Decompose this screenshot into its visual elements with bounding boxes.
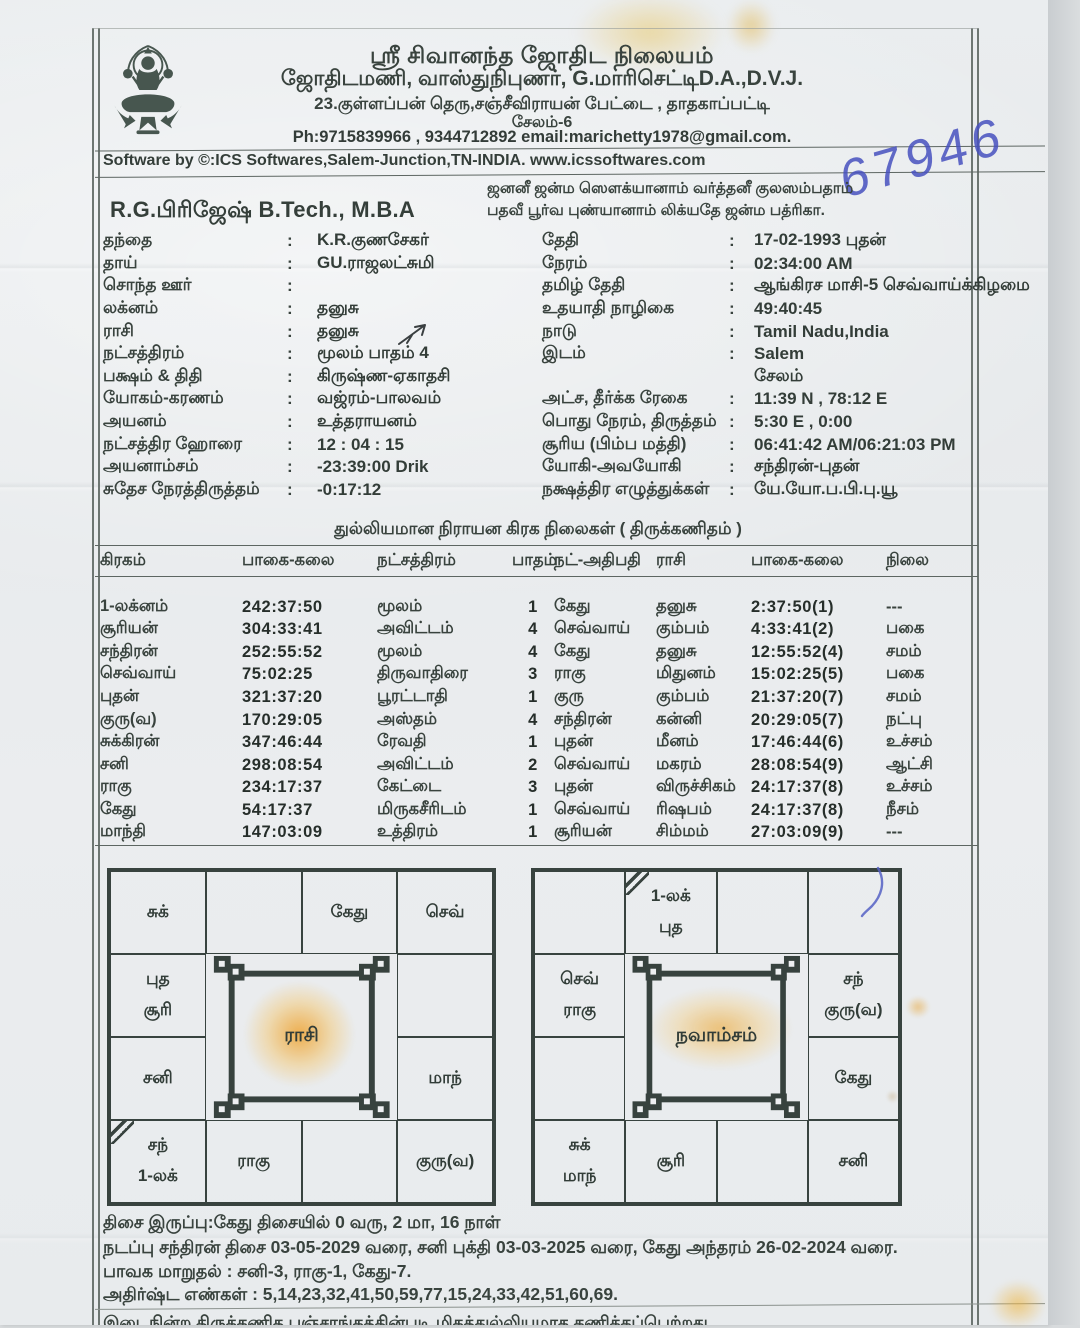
- table-row: ராகு234:17:37கேட்டை3புதன்விருச்சிகம்24:1…: [100, 776, 967, 799]
- table-row: சனி298:08:54அவிட்டம்2செவ்வாய்மகரம்28:08:…: [100, 754, 967, 777]
- chart-cell: [302, 1120, 398, 1203]
- cell-graha: சந்திரன்: [100, 642, 242, 663]
- cell-degree2: 24:17:37(8): [751, 801, 886, 820]
- chart-title: நவாம்சம்: [625, 954, 808, 1120]
- chart-cell-lagna: 1-லக்புத: [625, 871, 716, 954]
- border-line: [92, 28, 94, 1325]
- border-line: [977, 28, 979, 1325]
- detail-value: யே.யோ.ப.பி.பு.யூ: [754, 479, 1072, 501]
- table-row: 1-லக்னம்242:37:50மூலம்1கேதுதனுசு2:37:50(…: [100, 596, 967, 619]
- table-row: சந்திரன்252:55:52மூலம்4கேதுதனுசு12:55:52…: [100, 641, 967, 664]
- detail-value: 11:39 N , 78:12 E: [754, 389, 1072, 409]
- detail-label: நக்ஷத்திர எழுத்துக்கள்: [542, 479, 729, 501]
- sloka-line-1: ஜனனீ ஜன்ம ஸௌக்யானாம் வர்த்தனீ குலஸம்பதாம…: [487, 178, 853, 200]
- chart-cell: [717, 871, 808, 954]
- cell-graha: சூரியன்: [100, 619, 242, 640]
- detail-label: நாடு: [542, 321, 729, 343]
- cell-degree: 242:37:50: [242, 598, 377, 617]
- planet-label: ராகு: [237, 1151, 270, 1173]
- cell-rasi: மகரம்: [656, 755, 751, 776]
- cell-status: நீசம்: [886, 800, 967, 821]
- chart-cell: செவ்ராகு: [534, 954, 625, 1037]
- dasa-balance-line: திசை இருப்பு:கேது திசையில் 0 வரு, 2 மா, …: [103, 1212, 500, 1235]
- table-row: குரு(வ)170:29:05அஸ்தம்4சந்திரன்கன்னி20:2…: [100, 709, 967, 732]
- cell-pada: 3: [512, 778, 554, 797]
- chart-center: நவாம்சம்: [625, 954, 808, 1120]
- planet-label: புத: [659, 917, 683, 939]
- column-header: பாகை-கலை: [242, 551, 377, 572]
- detail-value: Salem: [754, 344, 1072, 364]
- detail-label: பக்ஷம் & திதி: [103, 366, 287, 388]
- cell-graha: சனி: [100, 755, 242, 776]
- cell-graha: 1-லக்னம்: [100, 597, 242, 618]
- cell-rasi: மிதுனம்: [656, 664, 751, 685]
- detail-label: இடம்: [542, 343, 729, 365]
- org-credentials: ஜோதிடமணி, வாஸ்துநிபுணர், G.மாரிசெட்டிD.A…: [98, 67, 986, 93]
- cell-star-lord: செவ்வாய்: [554, 755, 656, 776]
- cell-degree: 321:37:20: [242, 688, 377, 707]
- cell-pada: 4: [512, 711, 554, 730]
- detail-value: 49:40:45: [754, 299, 1072, 319]
- cell-star: மூலம்: [377, 597, 512, 618]
- current-dasa-line: நடப்பு சந்திரன் திசை 03-05-2029 வரை, சனி…: [103, 1237, 898, 1260]
- detail-label: தமிழ் தேதி: [542, 275, 729, 297]
- planet-label: ராகு: [563, 1000, 596, 1022]
- cell-degree2: 15:02:25(5): [751, 665, 886, 684]
- column-header: பாகை-கலை: [751, 551, 886, 572]
- navamsa-chart: 1-லக்புத செவ்ராகு சந்குரு(வ) கேது சுக்மா…: [531, 868, 902, 1206]
- rule-line: [95, 576, 978, 577]
- cell-degree2: 2:37:50(1): [751, 598, 886, 617]
- cell-status: பகை: [886, 664, 967, 685]
- chart-cell: சுக்: [110, 871, 206, 954]
- detail-label: தந்தை: [103, 230, 287, 252]
- column-header: பாதம்: [512, 551, 554, 572]
- detail-value: 12 : 04 : 15: [317, 435, 543, 455]
- detail-value: 02:34:00 AM: [754, 254, 1072, 274]
- cell-star-lord: குரு: [554, 687, 656, 708]
- stain: [906, 996, 930, 1018]
- stain: [990, 1280, 1046, 1328]
- cell-degree: 170:29:05: [242, 711, 377, 730]
- detail-row: நட்சத்திரம்:மூலம் பாதம் 4: [103, 343, 543, 366]
- border-line: [92, 28, 979, 29]
- planet-label: கேது: [331, 902, 369, 924]
- cell-degree: 147:03:09: [242, 823, 377, 842]
- chart-cell: [534, 871, 625, 954]
- detail-row: சேலம்: [542, 366, 1072, 389]
- colon: :: [287, 254, 317, 274]
- chart-cell: குரு(வ): [397, 1120, 493, 1203]
- chart-cell: சனி: [110, 1037, 206, 1120]
- planet-table-body: 1-லக்னம்242:37:50மூலம்1கேதுதனுசு2:37:50(…: [100, 596, 967, 844]
- sloka-line-2: பதவீ பூர்வ புண்யானாம் லிக்யதே ஜன்ம பத்ரி…: [487, 200, 853, 222]
- planet-label: சூரி: [657, 1151, 686, 1173]
- planet-label: குரு(வ): [824, 1000, 882, 1022]
- colon: :: [287, 231, 317, 251]
- detail-row: அட்ச, தீர்க்க ரேகை:11:39 N , 78:12 E: [542, 388, 1072, 411]
- colon: :: [729, 435, 754, 455]
- chart-cell: சனி: [808, 1120, 899, 1203]
- column-header: நட்-அதிபதி: [554, 551, 656, 572]
- column-header: ராசி: [656, 551, 751, 572]
- cell-star-lord: புதன்: [554, 732, 656, 753]
- cell-star: அஸ்தம்: [377, 710, 512, 731]
- cell-pada: 1: [512, 801, 554, 820]
- detail-label: நட்சத்திர ஹோரை: [103, 434, 287, 456]
- cell-status: ---: [886, 598, 967, 617]
- detail-label: தாய்: [103, 253, 287, 275]
- planet-label: சனி: [839, 1151, 869, 1173]
- birth-details-left: தந்தை:K.R.குணசேகர் தாய்:GU.ராஜலட்சுமி சொ…: [103, 230, 543, 501]
- colon: :: [729, 480, 754, 500]
- cell-rasi: ரிஷபம்: [656, 800, 751, 821]
- table-row: சுக்கிரன்347:46:44ரேவதி1புதன்மீனம்17:46:…: [100, 731, 967, 754]
- cell-rasi: மீனம்: [656, 732, 751, 753]
- detail-value: சந்திரன்-புதன்: [754, 456, 1072, 478]
- detail-label: அயனம்: [103, 411, 287, 433]
- colon: :: [287, 276, 317, 296]
- planet-label: சுக்: [569, 1135, 591, 1157]
- planet-label: செவ்: [560, 969, 599, 991]
- cell-star-lord: ராகு: [554, 664, 656, 685]
- cell-status: பகை: [886, 619, 967, 640]
- detail-row: உதயாதி நாழிகை:49:40:45: [542, 298, 1072, 321]
- cell-degree2: 27:03:09(9): [751, 823, 886, 842]
- colon: :: [287, 389, 317, 409]
- cell-star: அவிட்டம்: [377, 619, 512, 640]
- cell-graha: புதன்: [100, 687, 242, 708]
- detail-row: சூரிய (பிம்ப மத்தி):06:41:42 AM/06:21:03…: [542, 433, 1072, 456]
- lagna-label: 1-லக்: [651, 886, 691, 908]
- bhava-change-line: பாவக மாறுதல் : சனி-3, ராகு-1, கேது-7.: [103, 1261, 411, 1284]
- detail-row: அயனம்:உத்தராயனம்: [103, 411, 543, 434]
- cell-star: மிருகசீரிடம்: [377, 800, 512, 821]
- colon: :: [287, 367, 317, 387]
- cell-pada: 1: [512, 823, 554, 842]
- cell-star: உத்திரம்: [377, 822, 512, 843]
- cell-degree2: 28:08:54(9): [751, 756, 886, 775]
- cell-star: திருவாதிரை: [377, 664, 512, 685]
- colon: :: [729, 344, 754, 364]
- lagna-label: 1-லக்: [138, 1166, 178, 1188]
- cell-star-lord: செவ்வாய்: [554, 619, 656, 640]
- planet-label: சனி: [143, 1068, 173, 1090]
- chart-cell: கேது: [808, 1037, 899, 1120]
- cell-degree: 234:17:37: [242, 778, 377, 797]
- detail-row: நேரம்:02:34:00 AM: [542, 253, 1072, 276]
- detail-value: Tamil Nadu,India: [754, 322, 1072, 342]
- colon: :: [287, 299, 317, 319]
- planet-label: செவ்: [426, 902, 465, 924]
- cell-graha: மாந்தி: [100, 822, 242, 843]
- cell-status: சமம்: [886, 687, 967, 708]
- cell-rasi: தனுசு: [656, 597, 751, 618]
- lucky-numbers-line: அதிர்ஷ்ட எண்கள் : 5,14,23,32,41,50,59,77…: [103, 1284, 618, 1307]
- chart-cell: [534, 1037, 625, 1120]
- detail-label: அயனாம்சம்: [103, 456, 287, 478]
- chart-cell: ராகு: [206, 1120, 302, 1203]
- detail-value: கிருஷ்ண-ஏகாதசி: [317, 366, 543, 388]
- cell-pada: 3: [512, 665, 554, 684]
- detail-label: லக்னம்: [103, 298, 287, 320]
- chart-cell: புதசூரி: [110, 954, 206, 1037]
- planet-label: சந்: [843, 969, 863, 991]
- cell-star: பூரட்டாதி: [377, 687, 512, 708]
- birth-details-right: தேதி:17-02-1993 புதன் நேரம்:02:34:00 AM …: [542, 230, 1072, 501]
- table-row: கேது54:17:37மிருகசீரிடம்1செவ்வாய்ரிஷபம்2…: [100, 799, 967, 822]
- chart-cell: சந்குரு(வ): [808, 954, 899, 1037]
- cell-star: அவிட்டம்: [377, 755, 512, 776]
- cell-rasi: தனுசு: [656, 642, 751, 663]
- cell-degree2: 20:29:05(7): [751, 711, 886, 730]
- chart-cell: சூரி: [625, 1120, 716, 1203]
- cell-degree2: 12:55:52(4): [751, 643, 886, 662]
- detail-value: தனுசு: [317, 298, 543, 320]
- detail-row: தேதி:17-02-1993 புதன்: [542, 230, 1072, 253]
- planet-label: புத: [146, 969, 170, 991]
- colon: :: [729, 276, 754, 296]
- cell-degree: 75:02:25: [242, 665, 377, 684]
- cell-degree: 252:55:52: [242, 643, 377, 662]
- cell-status: சமம்: [886, 642, 967, 663]
- rule-line: [95, 545, 978, 546]
- cell-graha: குரு(வ): [100, 710, 242, 731]
- colon: :: [287, 344, 317, 364]
- cell-graha: சுக்கிரன்: [100, 732, 242, 753]
- colon: :: [287, 435, 317, 455]
- cell-star-lord: சூரியன்: [554, 822, 656, 843]
- cell-graha: கேது: [100, 800, 242, 821]
- table-row: மாந்தி147:03:09உத்திரம்1சூரியன்சிம்மம்27…: [100, 821, 967, 844]
- detail-label: ராசி: [103, 321, 287, 343]
- cell-pada: 4: [512, 620, 554, 639]
- detail-value: 06:41:42 AM/06:21:03 PM: [754, 435, 1072, 455]
- detail-label: சுதேச நேரத்திருத்தம்: [103, 479, 287, 501]
- detail-label: உதயாதி நாழிகை: [542, 298, 729, 320]
- rasi-chart: சுக் கேது செவ் புதசூரி சனி மாந் சந்1-லக்…: [107, 868, 496, 1206]
- cell-status: உச்சம்: [886, 777, 967, 798]
- chart-cell: [397, 954, 493, 1037]
- detail-row: பக்ஷம் & திதி:கிருஷ்ண-ஏகாதசி: [103, 366, 543, 389]
- cell-star-lord: செவ்வாய்: [554, 800, 656, 821]
- cell-star-lord: புதன்: [554, 777, 656, 798]
- detail-row: தந்தை:K.R.குணசேகர்: [103, 230, 543, 253]
- detail-label: நேரம்: [542, 253, 729, 275]
- planet-label: குரு(வ): [416, 1151, 474, 1173]
- cell-rasi: சிம்மம்: [656, 822, 751, 843]
- colon: :: [287, 480, 317, 500]
- cell-degree2: 17:46:44(6): [751, 733, 886, 752]
- planet-label: கேது: [835, 1068, 873, 1090]
- colon: :: [287, 322, 317, 342]
- cell-star: கேட்டை: [377, 777, 512, 798]
- detail-row: நாடு:Tamil Nadu,India: [542, 320, 1072, 343]
- detail-value: GU.ராஜலட்சுமி: [317, 253, 543, 275]
- detail-row: தாய்:GU.ராஜலட்சுமி: [103, 253, 543, 276]
- detail-row: சொந்த ஊர்:: [103, 275, 543, 298]
- pen-arrow-mark: [395, 320, 433, 348]
- cell-status: நட்பு: [886, 710, 967, 731]
- detail-row: யோகி-அவயோகி:சந்திரன்-புதன்: [542, 456, 1072, 479]
- cell-star-lord: கேது: [554, 642, 656, 663]
- detail-label: நட்சத்திரம்: [103, 343, 287, 365]
- cell-degree: 347:46:44: [242, 733, 377, 752]
- colon: :: [729, 389, 754, 409]
- detail-label: சூரிய (பிம்ப மத்தி): [542, 434, 729, 456]
- detail-label: அட்ச, தீர்க்க ரேகை: [542, 388, 729, 410]
- cell-rasi: கன்னி: [656, 710, 751, 731]
- detail-row: பொது நேரம், திருத்தம்:5:30 E , 0:00: [542, 411, 1072, 434]
- detail-label: தேதி: [542, 230, 729, 252]
- detail-value: சேலம்: [754, 366, 1072, 388]
- colon: :: [729, 231, 754, 251]
- detail-label: சொந்த ஊர்: [103, 275, 287, 297]
- chart-center: ராசி: [206, 954, 398, 1120]
- detail-row: யோகம்-கரணம்:வஜ்ரம்-பாலவம்: [103, 388, 543, 411]
- cell-graha: ராகு: [100, 777, 242, 798]
- colon: :: [729, 457, 754, 477]
- cell-star-lord: கேது: [554, 597, 656, 618]
- table-row: சூரியன்304:33:41அவிட்டம்4செவ்வாய்கும்பம்…: [100, 619, 967, 642]
- detail-value: 17-02-1993 புதன்: [754, 230, 1072, 252]
- detail-row: அயனாம்சம்:-23:39:00 Drik: [103, 456, 543, 479]
- colon: :: [729, 412, 754, 432]
- detail-value: -23:39:00 Drik: [317, 457, 543, 477]
- clipped-bottom-line: இடைநின்ற திருக்கணித பஞ்சாங்கத்தின்படி மி…: [103, 1313, 963, 1325]
- sloka-verse: ஜனனீ ஜன்ம ஸௌக்யானாம் வர்த்தனீ குலஸம்பதாம…: [487, 178, 853, 222]
- org-contact: Ph:9715839966 , 9344712892 email:mariche…: [98, 128, 986, 147]
- chart-cell: [717, 1120, 808, 1203]
- cell-pada: 1: [512, 733, 554, 752]
- cell-degree2: 4:33:41(2): [751, 620, 886, 639]
- cell-rasi: கும்பம்: [656, 619, 751, 640]
- detail-row: நக்ஷத்திர எழுத்துக்கள்:யே.யோ.ப.பி.பு.யூ: [542, 479, 1072, 502]
- detail-label: பொது நேரம், திருத்தம்: [542, 411, 729, 433]
- cell-pada: 1: [512, 688, 554, 707]
- cell-pada: 2: [512, 756, 554, 775]
- colon: :: [287, 412, 317, 432]
- chart-cell: சுக்மாந்: [534, 1120, 625, 1203]
- detail-value: -0:17:12: [317, 480, 543, 500]
- colon: :: [729, 254, 754, 274]
- cell-status: ---: [886, 823, 967, 842]
- cell-star: மூலம்: [377, 642, 512, 663]
- cell-star-lord: சந்திரன்: [554, 710, 656, 731]
- column-header: நட்சத்திரம்: [377, 551, 512, 572]
- chart-cell: மாந்: [397, 1037, 493, 1120]
- person-name: R.G.பிரிஜேஷ் B.Tech., M.B.A: [110, 197, 415, 226]
- planet-label: மாந்: [428, 1068, 461, 1090]
- cell-rasi: விருச்சிகம்: [656, 777, 751, 798]
- detail-value: வஜ்ரம்-பாலவம்: [317, 388, 543, 410]
- colon: :: [287, 457, 317, 477]
- detail-value: ஆங்கிரச மாசி-5 செவ்வாய்க்கிழமை: [754, 275, 1072, 297]
- chart-cell: கேது: [302, 871, 398, 954]
- cell-graha: செவ்வாய்: [100, 664, 242, 685]
- detail-value: K.R.குணசேகர்: [317, 230, 543, 252]
- rule-line: [95, 845, 978, 846]
- cell-degree2: 24:17:37(8): [751, 778, 886, 797]
- planet-label: மாந்: [563, 1166, 596, 1188]
- detail-value: 5:30 E , 0:00: [754, 412, 1072, 432]
- chart-title: ராசி: [206, 954, 398, 1120]
- cell-pada: 4: [512, 643, 554, 662]
- cell-pada: 1: [512, 598, 554, 617]
- detail-row: ராசி:தனுசு: [103, 320, 543, 343]
- cell-star: ரேவதி: [377, 732, 512, 753]
- colon: :: [729, 299, 754, 319]
- colon: :: [729, 322, 754, 342]
- planet-label: சந்: [148, 1135, 168, 1157]
- column-header: கிரகம்: [100, 551, 242, 572]
- detail-label: யோகம்-கரணம்: [103, 388, 287, 410]
- detail-value: உத்தராயனம்: [317, 411, 543, 433]
- pen-squiggle-mark: [852, 866, 886, 918]
- cell-degree2: 21:37:20(7): [751, 688, 886, 707]
- detail-row: நட்சத்திர ஹோரை:12 : 04 : 15: [103, 433, 543, 456]
- planet-label: சூரி: [144, 1000, 173, 1022]
- detail-label: யோகி-அவயோகி: [542, 456, 729, 478]
- planet-table-title: துல்லியமான நிராயன கிரக நிலைகள் ( திருக்க…: [98, 519, 978, 541]
- table-row: புதன்321:37:20பூரட்டாதி1குருகும்பம்21:37…: [100, 686, 967, 709]
- detail-row: சுதேச நேரத்திருத்தம்:-0:17:12: [103, 479, 543, 502]
- chart-cell-lagna: சந்1-லக்: [110, 1120, 206, 1203]
- cell-degree: 304:33:41: [242, 620, 377, 639]
- cell-status: உச்சம்: [886, 732, 967, 753]
- planet-label: சுக்: [147, 902, 169, 924]
- detail-row: லக்னம்:தனுசு: [103, 298, 543, 321]
- table-row: செவ்வாய்75:02:25திருவாதிரை3ராகுமிதுனம்15…: [100, 664, 967, 687]
- cell-degree: 298:08:54: [242, 756, 377, 775]
- detail-row: தமிழ் தேதி:ஆங்கிரச மாசி-5 செவ்வாய்க்கிழம…: [542, 275, 1072, 298]
- column-header: நிலை: [886, 551, 967, 572]
- cell-rasi: கும்பம்: [656, 687, 751, 708]
- scanner-background: [1048, 0, 1080, 1325]
- border-line: [971, 28, 973, 1325]
- detail-row: இடம்:Salem: [542, 343, 1072, 366]
- planet-table-header: கிரகம் பாகை-கலை நட்சத்திரம் பாதம் நட்-அத…: [100, 551, 967, 572]
- chart-cell: செவ்: [397, 871, 493, 954]
- software-credit-line: Software by ©:ICS Softwares,Salem-Juncti…: [103, 152, 705, 170]
- stain: [886, 1090, 899, 1103]
- chart-cell: [206, 871, 302, 954]
- cell-status: ஆட்சி: [886, 755, 967, 776]
- cell-degree: 54:17:37: [242, 801, 377, 820]
